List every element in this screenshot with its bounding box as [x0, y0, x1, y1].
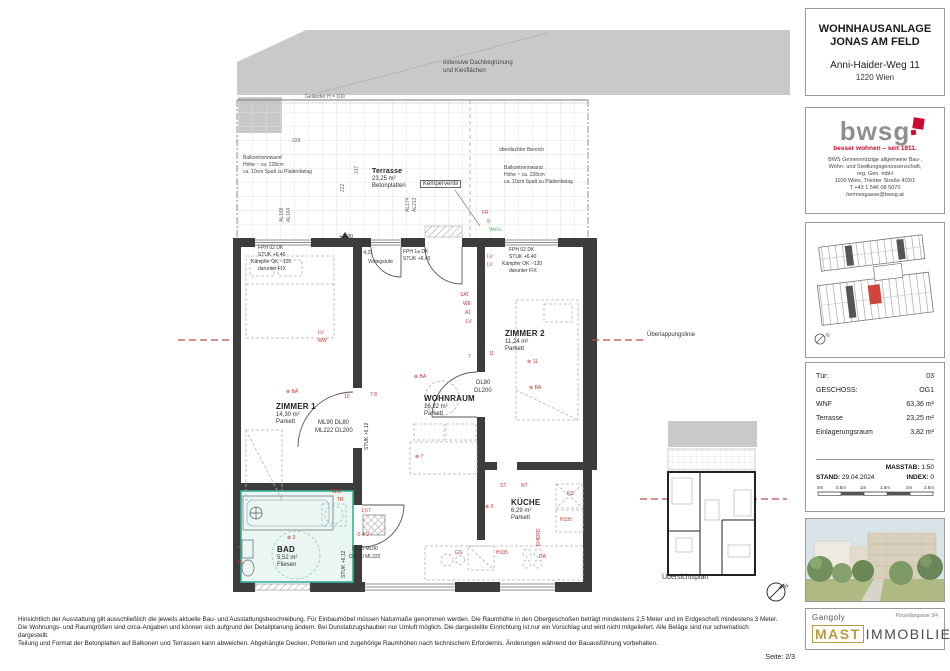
project-title-line1: WOHNHAUSANLAGE	[806, 23, 944, 36]
stand-label: STAND:	[816, 474, 840, 481]
room-name: BAD	[277, 545, 297, 554]
plan-annotation: DL200 ML222	[349, 554, 380, 560]
bwsg-address-line: reg. Gen. mbH	[806, 171, 944, 178]
plan-annotation: LV	[487, 262, 493, 268]
bwsg-address-line: Wohn- und Siedlungsgenossenschaft,	[806, 164, 944, 171]
plan-annotation: AL174	[405, 198, 411, 212]
plan-annotation: extensive Dachbegrünung	[443, 60, 513, 66]
row-label: Einlagerungsraum	[816, 429, 873, 436]
plan-annotation: 317	[354, 166, 360, 174]
row-value: 23,25 m²	[906, 415, 934, 422]
unit-info-table: Tür: 03 GESCHOSS: OG1 WNF 63,36 m² Terra…	[805, 362, 945, 512]
plan-annotation: WE	[463, 301, 471, 307]
room-label-bad: BAD 5,52 m² Fliesen	[277, 545, 297, 568]
index-value: 0	[930, 474, 934, 481]
mast-logo-mark: MAST	[812, 625, 864, 643]
stand-value: 29.04.2024	[842, 474, 875, 481]
plan-annotation: SAT	[460, 292, 469, 298]
mast-logo-text: IMMOBILIEN	[866, 626, 950, 642]
plan-annotation: WM	[332, 489, 341, 495]
plan-annotation: 4	[238, 545, 241, 551]
row-label: GESCHOSS:	[816, 387, 858, 394]
plan-annotation: H105	[496, 550, 508, 556]
plan-annotation: + 4,21	[359, 250, 373, 256]
plan-annotation: STUK +6,40	[403, 256, 430, 262]
bwsg-address-line: 1100 Wien, Triester Straße 403/1	[806, 178, 944, 185]
room-label-kueche: KÜCHE 6,29 m² Parkett	[511, 498, 540, 521]
row-value: 63,36 m²	[906, 401, 934, 408]
plan-annotation: KL	[238, 560, 244, 566]
svg-text:0.5m: 0.5m	[836, 485, 846, 490]
plan-annotation: 7	[468, 354, 471, 360]
room-area: 14,30 m²	[276, 412, 316, 418]
room-label-zimmer1: ZIMMER 1 14,30 m² Parkett	[276, 402, 316, 425]
building-rendering-photo	[805, 518, 945, 602]
project-address: Anni-Haider-Weg 11	[806, 60, 944, 71]
plan-annotation: 1,67	[361, 508, 371, 514]
svg-text:0m: 0m	[817, 485, 824, 490]
row-value: 03	[926, 373, 934, 380]
room-area: 5,52 m²	[277, 555, 297, 561]
plan-annotation: ⊗ 11	[527, 359, 538, 365]
plan-annotation: 222	[340, 184, 346, 192]
plan-annotation: Übersichtsplan	[662, 575, 708, 581]
bwsg-block: bwsg besser wohnen – seit 1911. BWS Geme…	[805, 107, 945, 214]
plan-annotation: Balkontrennwand	[504, 165, 543, 171]
plan-annotation: darunter FIX	[509, 268, 537, 274]
plan-annotation: ML90 DL80	[318, 420, 349, 426]
plan-annotation: EHERD	[536, 528, 542, 546]
plan-annotation: DL80	[476, 380, 490, 386]
plan-annotation: DL200	[474, 388, 492, 394]
table-row: GESCHOSS: OG1	[816, 387, 934, 394]
stand: STAND: 29.04.2024	[816, 474, 874, 481]
masstab-value: 1:50	[921, 464, 934, 471]
bwsg-logo: bwsg	[840, 116, 910, 147]
plan-annotation: -0,4 V	[356, 532, 369, 538]
bwsg-logo-square-icon	[913, 117, 925, 129]
plan-annotation: NT	[521, 483, 528, 489]
plan-annotation: AL213	[412, 198, 418, 212]
plan-annotation: H105	[560, 517, 572, 523]
brand-address: Porzellangasse 3/4	[895, 613, 938, 619]
architect-name: Gangoly	[812, 613, 845, 622]
plan-annotation: ca. 10cm Spalt zu Plattenbelag	[243, 169, 312, 175]
floor-plan-drawing: N	[0, 0, 800, 612]
plan-annotation: Geländer H = 100	[305, 94, 345, 100]
bathroom-area	[241, 491, 353, 582]
plan-annotation: LV	[487, 254, 493, 260]
bwsg-logo-text: bwsg	[840, 116, 910, 146]
project-city: 1220 Wien	[806, 73, 944, 82]
bwsg-address: BWS Gemeinnützige allgemeine Bau-, Wohn-…	[806, 157, 944, 199]
plan-annotation: LV	[318, 330, 324, 336]
plan-annotation: ca. 10cm Spalt zu Plattenbelag	[504, 179, 573, 185]
plan-annotation: DA	[539, 554, 546, 560]
plan-annotation: 7 8	[370, 392, 377, 398]
page-number: Seite: 2/3	[720, 654, 795, 661]
plan-annotation: FPH 1a DK	[403, 249, 428, 255]
plan-annotation: FPH 02 DK	[509, 247, 534, 253]
bwsg-address-line: BWS Gemeinnützige allgemeine Bau-,	[806, 157, 944, 164]
svg-text:1.5m: 1.5m	[880, 485, 890, 490]
table-row: Einlagerungsraum 3,82 m²	[816, 429, 934, 436]
plan-annotation: ⊗ BA	[286, 389, 298, 395]
plan-annotation: STUK +6,40	[509, 254, 536, 260]
plan-annotation: A1	[465, 310, 471, 316]
plan-annotation: STUK +6,40	[258, 252, 285, 258]
table-row: Terrasse 23,25 m²	[816, 415, 934, 422]
plan-annotation: ⊗ BA	[414, 374, 426, 380]
disclaimer-text: Hinsichtlich der Ausstattung gilt aussch…	[18, 616, 780, 648]
plan-annotation: ML222 DL200	[315, 428, 353, 434]
plan-annotation: AL168	[279, 208, 285, 222]
overview-plan	[668, 421, 757, 575]
highlighted-unit	[868, 284, 882, 304]
disclaimer-line: Hinsichtlich der Ausstattung gilt aussch…	[18, 616, 780, 624]
plan-annotation: 229	[292, 138, 300, 144]
plan-annotation: Kämpfer OK ~120	[251, 259, 291, 265]
plan-annotation: Ven-L	[489, 227, 502, 233]
table-row: Tür: 03	[816, 373, 934, 380]
svg-text:1m: 1m	[860, 485, 867, 490]
plan-annotation: ⊗ 6	[485, 504, 493, 510]
site-north-icon: N	[815, 333, 830, 344]
site-plan-drawing: N	[806, 223, 944, 357]
room-name: ZIMMER 1	[276, 402, 316, 411]
row-label: Tür:	[816, 373, 828, 380]
plan-annotation: Vorlegstufe	[368, 259, 393, 265]
room-floor: Parkett	[505, 346, 545, 352]
plan-sheet: N LVLVSATWEA1LVLVMW⊗ BA107 8⊗ BA⊗ 7711⊗ …	[0, 0, 950, 671]
masstab-label: MASSTAB:	[886, 464, 920, 471]
plan-annotation: Höhe ~ ca. 228cm	[243, 162, 284, 168]
room-floor: Betonplatten	[372, 183, 406, 189]
room-name: ZIMMER 2	[505, 329, 545, 338]
row-label: Terrasse	[816, 415, 843, 422]
room-area: 23,25 m²	[372, 176, 406, 182]
plan-annotation: MW	[318, 338, 327, 344]
bwsg-email: hermesgasse@bwsg.at	[806, 192, 944, 199]
brand-block: Gangoly Porzellangasse 3/4 MAST IMMOBILI…	[805, 608, 945, 650]
plan-annotation: und Kiesflächen	[443, 68, 486, 74]
room-label-terrasse: Terrasse 23,25 m² Betonplatten	[372, 168, 406, 189]
row-label: WNF	[816, 401, 832, 408]
plan-annotation: ⊗ BA	[529, 385, 541, 391]
row-value: 3,82 m²	[910, 429, 934, 436]
plan-annotation: TR	[337, 497, 344, 503]
room-floor: Parkett	[424, 411, 475, 417]
room-area: 11,24 m²	[505, 339, 545, 345]
plan-annotation: Überlappungslinie	[647, 332, 695, 338]
bwsg-address-line: T +43 1 546 08 5070	[806, 185, 944, 192]
north-arrow-icon: N	[767, 583, 790, 601]
room-area: 6,29 m²	[511, 508, 540, 514]
plan-annotation: Balkontrennwand	[243, 155, 282, 161]
plan-annotation: Höhe ~ ca. 228cm	[504, 172, 545, 178]
room-name: WOHNRAUM	[424, 394, 475, 403]
plan-annotation: 10	[344, 394, 350, 400]
room-floor: Fliesen	[277, 562, 297, 568]
room-floor: Parkett	[276, 419, 316, 425]
plan-annotation: FR	[482, 210, 489, 216]
plan-annotation: darunter FIX	[258, 266, 286, 272]
plan-meta: MASSTAB: 1:50 STAND: 29.04.2024 INDEX: 0…	[816, 459, 934, 505]
index: INDEX: 0	[907, 474, 934, 481]
room-label-wohnraum: WOHNRAUM 16,22 m² Parkett	[424, 394, 475, 417]
plan-annotation: GS	[455, 550, 462, 556]
svg-text:N: N	[826, 333, 830, 339]
row-value: OG1	[919, 387, 934, 394]
plan-annotation: AL164	[286, 208, 292, 222]
plan-annotation: 9	[487, 219, 490, 225]
plan-annotation: Kämpfer OK ~120	[502, 261, 542, 267]
plan-annotation: KS	[567, 491, 574, 497]
plan-annotation: Kemperventil	[420, 180, 461, 188]
disclaimer-line: Die Wohnungs- und Raumgrößen sind circa-…	[18, 624, 780, 640]
table-row: WNF 63,36 m²	[816, 401, 934, 408]
plan-annotation: FPH 02 DK	[258, 245, 283, 251]
room-name: KÜCHE	[511, 498, 540, 507]
plan-annotation: LV	[466, 319, 472, 325]
svg-text:2m: 2m	[906, 485, 913, 490]
plan-annotation: STUK +6,12	[364, 423, 370, 450]
site-key-plan: N	[805, 222, 945, 358]
room-name: Terrasse	[372, 168, 406, 175]
room-floor: Parkett	[511, 515, 540, 521]
plan-annotation: überdachter Bereich	[499, 147, 544, 153]
masstab: MASSTAB: 1:50	[816, 464, 934, 471]
disclaimer-line: Teilung und Format der Betonplatten auf …	[18, 640, 780, 648]
plan-annotation: STUK +6,12	[341, 551, 347, 578]
plan-annotation: ST	[500, 483, 506, 489]
svg-text:2.5m: 2.5m	[924, 485, 934, 490]
title-block: WOHNHAUSANLAGE JONAS AM FELD Anni-Haider…	[805, 8, 945, 96]
plan-annotation: ⊗ 3	[287, 535, 295, 541]
scale-bar: 0m 0.5m 1m 1.5m 2m 2.5m	[816, 484, 936, 500]
index-label: INDEX:	[907, 474, 929, 481]
room-label-zimmer2: ZIMMER 2 11,24 m² Parkett	[505, 329, 545, 352]
mast-immobilien-logo: MAST IMMOBILIEN	[812, 625, 938, 643]
plan-annotation: + 4,20	[339, 234, 353, 240]
bwsg-logo-square-icon	[911, 130, 917, 136]
rendering-image	[806, 519, 944, 601]
plan-annotation: DL80 ML90	[352, 546, 378, 552]
project-title-line2: JONAS AM FELD	[806, 36, 944, 49]
room-area: 16,22 m²	[424, 404, 475, 410]
plan-annotation: 11	[489, 351, 494, 357]
plan-annotation: ⊗ 7	[415, 454, 423, 460]
